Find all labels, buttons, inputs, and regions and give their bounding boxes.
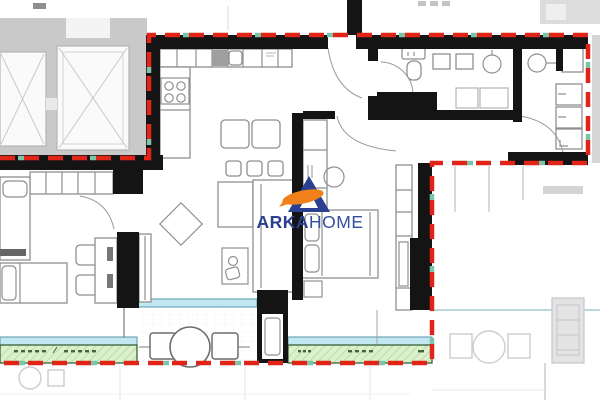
wall-mid (437, 110, 513, 120)
brand-text-home: HOME (309, 212, 364, 232)
balcony-utility-box (257, 310, 288, 363)
bath-counter (480, 88, 508, 108)
balustrade-glass-right (288, 337, 432, 345)
wall-stub-top (347, 0, 362, 35)
wc-cabinet (562, 47, 583, 72)
wall-hall-slab (377, 92, 437, 120)
balcony-chair-right (212, 333, 238, 359)
wall-balcony-slab (257, 290, 288, 310)
shower-tray (456, 88, 478, 108)
kitchen-sink-drainer (212, 50, 228, 66)
dining-chair (226, 161, 241, 176)
elevator-core (0, 18, 147, 158)
brand-text-arka: ARKA (256, 212, 309, 232)
monitor (107, 247, 113, 261)
balustrade-glass-left (0, 337, 137, 345)
floor-plan-canvas: ARKAHOME (0, 0, 600, 400)
dining-table (218, 182, 253, 227)
ledge (0, 249, 26, 256)
wall-bedroom-top (303, 111, 335, 119)
desk (95, 238, 117, 303)
wardrobe-row (30, 172, 113, 194)
planter-strip-right (288, 345, 432, 363)
dining-chair (252, 120, 280, 148)
planter-strip-left (0, 345, 137, 363)
floor-plan-drawing: ARKAHOME (0, 0, 600, 400)
bath-fixture (433, 54, 450, 69)
bed-vertical (0, 177, 30, 260)
toilet-bowl (407, 61, 421, 80)
monitor (107, 274, 113, 288)
wall-hall (368, 96, 378, 120)
balcony-glass (137, 299, 257, 307)
kitchen-sink (229, 51, 242, 65)
wall-block (113, 170, 143, 194)
dining-chair (221, 120, 249, 148)
wall-bath-divider (513, 45, 522, 122)
wall-hall (368, 45, 378, 61)
bed-horizontal (0, 263, 67, 303)
arkahome-wordmark: ARKAHOME (256, 212, 363, 232)
kitchen-base-cabinet (160, 67, 190, 158)
wall-stub-wc (556, 45, 563, 71)
wall-desk-side (117, 232, 139, 308)
bath-fixture (456, 54, 473, 69)
dining-chair (268, 161, 283, 176)
wall-unit-right-lower (410, 238, 432, 310)
dining-chair (247, 161, 262, 176)
